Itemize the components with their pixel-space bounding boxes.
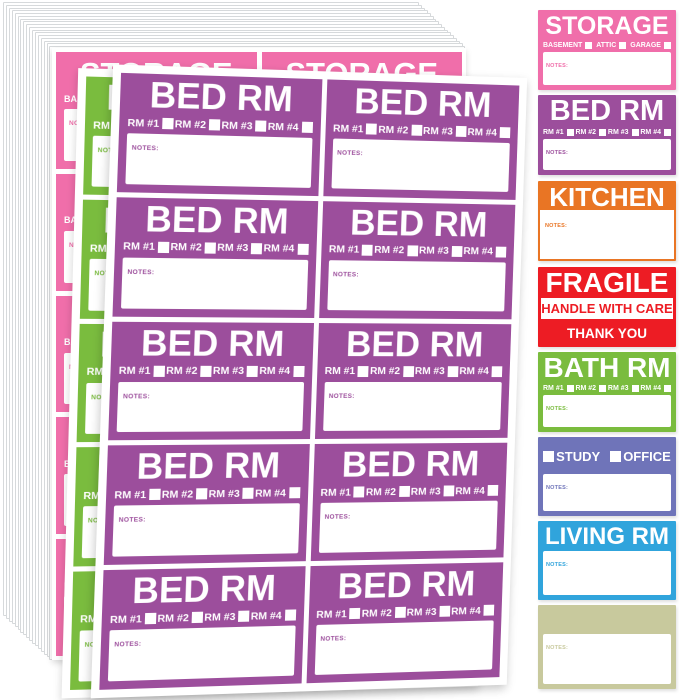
checkbox-item: RM #2 (575, 129, 606, 136)
checkbox-item: RM #2 (378, 123, 422, 136)
checkbox-label: RM #1 (329, 244, 360, 256)
sample-storage: STORAGEBASEMENTATTICGARAGENOTES: (538, 10, 676, 90)
checkbox-item: RM #1 (543, 385, 574, 392)
checkbox-label: RM #3 (423, 124, 453, 137)
checkbox-icon (209, 119, 220, 130)
checkbox-icon (238, 611, 249, 622)
checkbox-icon (243, 488, 254, 499)
bed-sticker: BED RMRM #1RM #2RM #3RM #4NOTES: (104, 444, 310, 565)
checkbox-icon (456, 126, 467, 137)
checkbox-row: RM #1RM #2RM #3RM #4 (538, 127, 676, 137)
checkbox-item: RM #1 (110, 612, 157, 625)
checkbox-item: RM #4 (255, 487, 300, 500)
checkbox-label: RM #3 (415, 365, 445, 377)
sticker-title: BED RM (321, 204, 515, 243)
checkbox-label: RM #4 (459, 365, 489, 377)
checkbox-icon (585, 42, 592, 49)
sample-bath-rm: BATH RMRM #1RM #2RM #3RM #4NOTES: (538, 352, 676, 432)
sticker-title: STORAGE (538, 14, 676, 39)
fragile-footer: THANK YOU (538, 319, 676, 347)
checkbox-label: RM #4 (463, 245, 493, 257)
checkbox-label: RM #2 (575, 129, 596, 136)
notes-box: NOTES: (543, 52, 671, 85)
checkbox-item: RM #3 (213, 365, 259, 377)
checkbox-item: RM #3 (411, 485, 455, 497)
checkbox-icon (664, 42, 671, 49)
notes-box: NOTES: (323, 382, 502, 432)
checkbox-icon (366, 123, 377, 134)
checkbox-icon (145, 613, 157, 624)
notes-label: NOTES: (546, 485, 568, 491)
checkbox-label: OFFICE (623, 449, 671, 464)
notes-label: NOTES: (123, 393, 150, 400)
checkbox-item: OFFICE (610, 449, 671, 464)
checkbox-label: RM #4 (263, 243, 294, 255)
sheet-bed-rm: BED RMRM #1RM #2RM #3RM #4NOTES:BED RMRM… (91, 64, 527, 698)
checkbox-icon (284, 610, 295, 621)
checkbox-label: RM #2 (575, 385, 596, 392)
checkbox-icon (411, 125, 422, 136)
checkbox-item: RM #3 (415, 365, 459, 377)
checkbox-icon (358, 366, 369, 377)
checkbox-label: GARAGE (630, 42, 661, 49)
checkbox-item: RM #2 (166, 365, 212, 377)
notes-box: NOTES: (543, 474, 671, 511)
checkbox-label: RM #3 (406, 606, 436, 619)
checkbox-icon (567, 129, 574, 136)
checkbox-item: RM #2 (170, 241, 216, 254)
checkbox-icon (153, 365, 165, 376)
checkbox-item: RM #2 (575, 385, 606, 392)
checkbox-label: RM #4 (455, 485, 485, 497)
checkbox-row: RM #1RM #2RM #3RM #4 (115, 239, 317, 257)
notes-label: NOTES: (546, 63, 568, 69)
checkbox-item: ATTIC (596, 42, 626, 49)
checkbox-label: RM #2 (170, 241, 202, 254)
checkbox-item: RM #4 (459, 365, 502, 377)
checkbox-item: RM #4 (463, 245, 506, 257)
checkbox-item: RM #1 (329, 244, 373, 257)
checkbox-icon (632, 129, 639, 136)
checkbox-icon (350, 608, 361, 619)
notes-label: NOTES: (320, 635, 346, 643)
bed-sticker: BED RMRM #1RM #2RM #3RM #4NOTES: (314, 323, 511, 440)
checkbox-item: RM #2 (361, 606, 405, 619)
sample-bed-rm: BED RMRM #1RM #2RM #3RM #4NOTES: (538, 95, 676, 175)
checkbox-label: RM #4 (268, 120, 299, 133)
bed-sticker: BED RMRM #1RM #2RM #3RM #4NOTES: (117, 73, 322, 196)
sample-blank: NOTES: (538, 605, 676, 689)
checkbox-icon (610, 451, 621, 462)
checkbox-icon (399, 486, 410, 497)
checkbox-label: RM #4 (451, 605, 481, 618)
bed-sticker: BED RMRM #1RM #2RM #3RM #4NOTES: (306, 562, 503, 683)
moving-labels-product-image: STORAGEBASEMENTATTICGARAGENOTES:STORAGEB… (0, 0, 679, 700)
checkbox-icon (599, 129, 606, 136)
checkbox-label: RM #3 (221, 119, 252, 132)
notes-box: NOTES: (327, 260, 506, 311)
checkbox-row: RM #1RM #2RM #3RM #4 (321, 242, 514, 260)
notes-box: NOTES: (117, 382, 304, 433)
checkbox-icon (255, 120, 266, 131)
checkbox-icon (447, 366, 458, 377)
sticker-title: BED RM (326, 82, 520, 123)
checkbox-label: RM #3 (411, 485, 441, 497)
checkbox-item: RM #3 (608, 385, 639, 392)
checkbox-icon (192, 612, 204, 623)
notes-box: NOTES: (112, 504, 299, 557)
checkbox-label: RM #1 (320, 486, 351, 498)
checkbox-icon (162, 118, 174, 129)
checkbox-item: RM #3 (221, 119, 266, 132)
checkbox-label: RM #1 (119, 365, 151, 377)
checkbox-icon (200, 365, 212, 376)
checkbox-label: BASEMENT (543, 42, 582, 49)
checkbox-item: RM #2 (162, 488, 208, 501)
notes-label: NOTES: (329, 393, 355, 400)
notes-label: NOTES: (333, 271, 359, 278)
notes-label: NOTES: (546, 562, 568, 568)
checkbox-label: RM #4 (640, 385, 661, 392)
checkbox-label: RM #1 (127, 116, 159, 129)
checkbox-item: RM #3 (217, 242, 263, 255)
checkbox-label: RM #2 (378, 123, 408, 136)
sample-study-office: STUDYOFFICENOTES: (538, 437, 676, 516)
checkbox-icon (483, 605, 494, 616)
checkbox-icon (443, 486, 454, 497)
checkbox-icon (293, 366, 304, 377)
checkbox-label: RM #2 (175, 118, 207, 131)
checkbox-item: RM #1 (333, 122, 377, 135)
checkbox-item: RM #4 (263, 243, 308, 256)
checkbox-icon (451, 246, 462, 257)
sticker-title: BED RM (102, 569, 305, 610)
checkbox-icon (500, 127, 511, 138)
checkbox-icon (354, 487, 365, 498)
checkbox-icon (619, 42, 626, 49)
checkbox-label: RM #1 (110, 613, 142, 626)
checkbox-label: RM #2 (374, 244, 404, 256)
notes-label: NOTES: (337, 150, 363, 158)
checkbox-icon (251, 243, 262, 254)
checkbox-label: RM #3 (608, 385, 629, 392)
sticker-title: BED RM (309, 565, 503, 605)
checkbox-item: RM #3 (419, 245, 463, 257)
checkbox-label: RM #3 (213, 365, 245, 377)
checkbox-row: RM #1RM #2RM #3RM #4 (110, 363, 312, 378)
checkbox-item: RM #1 (320, 486, 365, 498)
checkbox-label: RM #1 (543, 385, 564, 392)
checkbox-item: RM #2 (175, 118, 221, 131)
checkbox-icon (196, 489, 208, 500)
checkbox-label: RM #2 (361, 607, 392, 620)
bed-sticker: BED RMRM #1RM #2RM #3RM #4NOTES: (310, 443, 507, 561)
checkbox-icon (632, 385, 639, 392)
sticker-title: BED RM (115, 200, 317, 240)
checkbox-item: RM #3 (406, 605, 450, 618)
checkbox-label: RM #1 (123, 241, 155, 254)
checkbox-label: RM #4 (251, 609, 282, 622)
checkbox-row: BASEMENTATTICGARAGE (538, 40, 676, 50)
bed-sticker: BED RMRM #1RM #2RM #3RM #4NOTES: (319, 201, 516, 319)
checkbox-item: RM #4 (640, 385, 671, 392)
checkbox-item: RM #1 (114, 489, 160, 502)
sticker-title: BED RM (313, 446, 507, 483)
checkbox-row: RM #1RM #2RM #3RM #4 (538, 383, 676, 393)
notes-box: NOTES: (314, 621, 493, 675)
checkbox-label: RM #4 (255, 487, 286, 499)
checkbox-label: ATTIC (596, 42, 616, 49)
checkbox-icon (301, 122, 312, 133)
checkbox-item: RM #3 (423, 124, 467, 137)
checkbox-item: RM #1 (119, 365, 165, 377)
checkbox-item: BASEMENT (543, 42, 592, 49)
blank-header (538, 605, 676, 632)
checkbox-row: RM #1RM #2RM #3RM #4 (106, 485, 308, 503)
sample-fragile: FRAGILEHANDLE WITH CARETHANK YOU (538, 267, 676, 347)
checkbox-icon (543, 451, 554, 462)
checkbox-label: RM #2 (370, 365, 401, 377)
sticker-title: BED RM (111, 324, 314, 361)
checkbox-icon (664, 385, 671, 392)
notes-label: NOTES: (127, 269, 154, 276)
checkbox-item: RM #3 (608, 129, 639, 136)
notes-box: NOTES: (543, 139, 671, 170)
checkbox-item: GARAGE (630, 42, 671, 49)
notes-box: NOTES: (543, 551, 671, 595)
sticker-title: BED RM (317, 326, 511, 362)
checkbox-item: RM #4 (268, 120, 313, 133)
notes-label: NOTES: (132, 145, 159, 153)
notes-box: NOTES: (121, 257, 308, 309)
checkbox-icon (205, 242, 216, 253)
checkbox-icon (362, 244, 373, 255)
checkbox-item: RM #1 (543, 129, 574, 136)
notes-label: NOTES: (114, 641, 141, 649)
checkbox-item: RM #1 (316, 608, 361, 621)
checkbox-row: STUDYOFFICE (538, 440, 676, 472)
notes-label: NOTES: (545, 223, 567, 229)
notes-label: NOTES: (324, 514, 350, 521)
checkbox-item: RM #2 (374, 244, 418, 256)
checkbox-item: RM #4 (451, 604, 494, 617)
sticker-title: BED RM (107, 447, 310, 485)
sticker-title: KITCHEN (549, 184, 665, 210)
checkbox-icon (496, 246, 507, 257)
checkbox-item: RM #4 (467, 126, 510, 139)
checkbox-label: RM #3 (608, 129, 629, 136)
checkbox-label: RM #3 (208, 488, 240, 500)
checkbox-label: STUDY (556, 449, 600, 464)
notes-label: NOTES: (546, 406, 568, 412)
checkbox-label: RM #3 (419, 245, 449, 257)
checkbox-icon (403, 366, 414, 377)
checkbox-icon (599, 385, 606, 392)
checkbox-label: RM #1 (333, 122, 364, 135)
bed-sticker: BED RMRM #1RM #2RM #3RM #4NOTES: (99, 566, 305, 689)
checkbox-icon (289, 488, 300, 499)
notes-box: NOTES: (331, 138, 510, 191)
checkbox-label: RM #2 (162, 488, 194, 501)
checkbox-icon (158, 242, 170, 253)
checkbox-item: RM #4 (640, 129, 671, 136)
checkbox-icon (664, 129, 671, 136)
checkbox-label: RM #3 (204, 611, 236, 624)
sample-living-rm: LIVING RMNOTES: (538, 521, 676, 600)
checkbox-icon (567, 385, 574, 392)
notes-box: NOTES: (108, 626, 295, 682)
notes-box: NOTES: (543, 634, 671, 684)
checkbox-item: RM #3 (204, 610, 250, 623)
checkbox-item: RM #1 (324, 365, 368, 377)
checkbox-icon (395, 607, 406, 618)
checkbox-item: RM #3 (208, 488, 254, 501)
bed-sticker: BED RMRM #1RM #2RM #3RM #4NOTES: (323, 79, 520, 199)
bed-sticker: BED RMRM #1RM #2RM #3RM #4NOTES: (108, 321, 313, 440)
notes-box: NOTES: (318, 501, 497, 553)
checkbox-icon (407, 245, 418, 256)
notes-box: NOTES: (125, 133, 312, 188)
notes-label: NOTES: (546, 150, 568, 156)
checkbox-row: RM #1RM #2RM #3RM #4 (308, 603, 502, 623)
checkbox-item: RM #1 (123, 241, 169, 254)
bed-rm-sheet-grid: BED RMRM #1RM #2RM #3RM #4NOTES:BED RMRM… (99, 73, 519, 690)
checkbox-icon (439, 606, 450, 617)
checkbox-row: RM #1RM #2RM #3RM #4 (317, 364, 510, 379)
checkbox-icon (487, 485, 498, 496)
checkbox-label: RM #2 (166, 365, 198, 377)
checkbox-label: RM #4 (259, 365, 290, 377)
notes-box: NOTES: (540, 210, 674, 259)
sticker-title: LIVING RM (538, 525, 676, 549)
checkbox-item: RM #1 (127, 116, 173, 129)
checkbox-label: RM #3 (217, 242, 249, 255)
sample-kitchen: KITCHENNOTES: (538, 181, 676, 261)
fragile-subtitle-band: HANDLE WITH CARE (541, 298, 673, 319)
checkbox-row: RM #1RM #2RM #3RM #4 (312, 483, 506, 500)
checkbox-label: RM #4 (640, 129, 661, 136)
bed-sticker: BED RMRM #1RM #2RM #3RM #4NOTES: (112, 197, 317, 318)
checkbox-item: RM #4 (259, 365, 304, 377)
checkbox-label: RM #2 (157, 612, 189, 625)
checkbox-icon (247, 365, 258, 376)
checkbox-label: RM #4 (467, 126, 497, 139)
checkbox-item: RM #4 (251, 609, 296, 622)
notes-label: NOTES: (119, 517, 146, 525)
checkbox-item: RM #4 (455, 485, 498, 497)
checkbox-icon (297, 244, 308, 255)
checkbox-label: RM #1 (324, 365, 355, 377)
sticker-header: KITCHEN (540, 183, 674, 210)
checkbox-label: RM #1 (543, 129, 564, 136)
checkbox-icon (149, 489, 161, 500)
sticker-title: BED RM (538, 97, 676, 126)
sticker-title: FRAGILE (538, 268, 676, 297)
sticker-title: BATH RM (538, 354, 676, 382)
checkbox-item: STUDY (543, 449, 600, 464)
notes-label: NOTES: (546, 645, 568, 651)
sticker-title: BED RM (120, 76, 322, 118)
checkbox-label: RM #2 (366, 486, 397, 498)
checkbox-icon (492, 366, 503, 377)
checkbox-item: RM #2 (370, 365, 414, 377)
checkbox-label: RM #1 (316, 608, 347, 621)
checkbox-label: RM #1 (114, 489, 146, 502)
checkbox-item: RM #2 (157, 611, 203, 624)
notes-box: NOTES: (543, 395, 671, 427)
checkbox-item: RM #2 (366, 486, 410, 498)
